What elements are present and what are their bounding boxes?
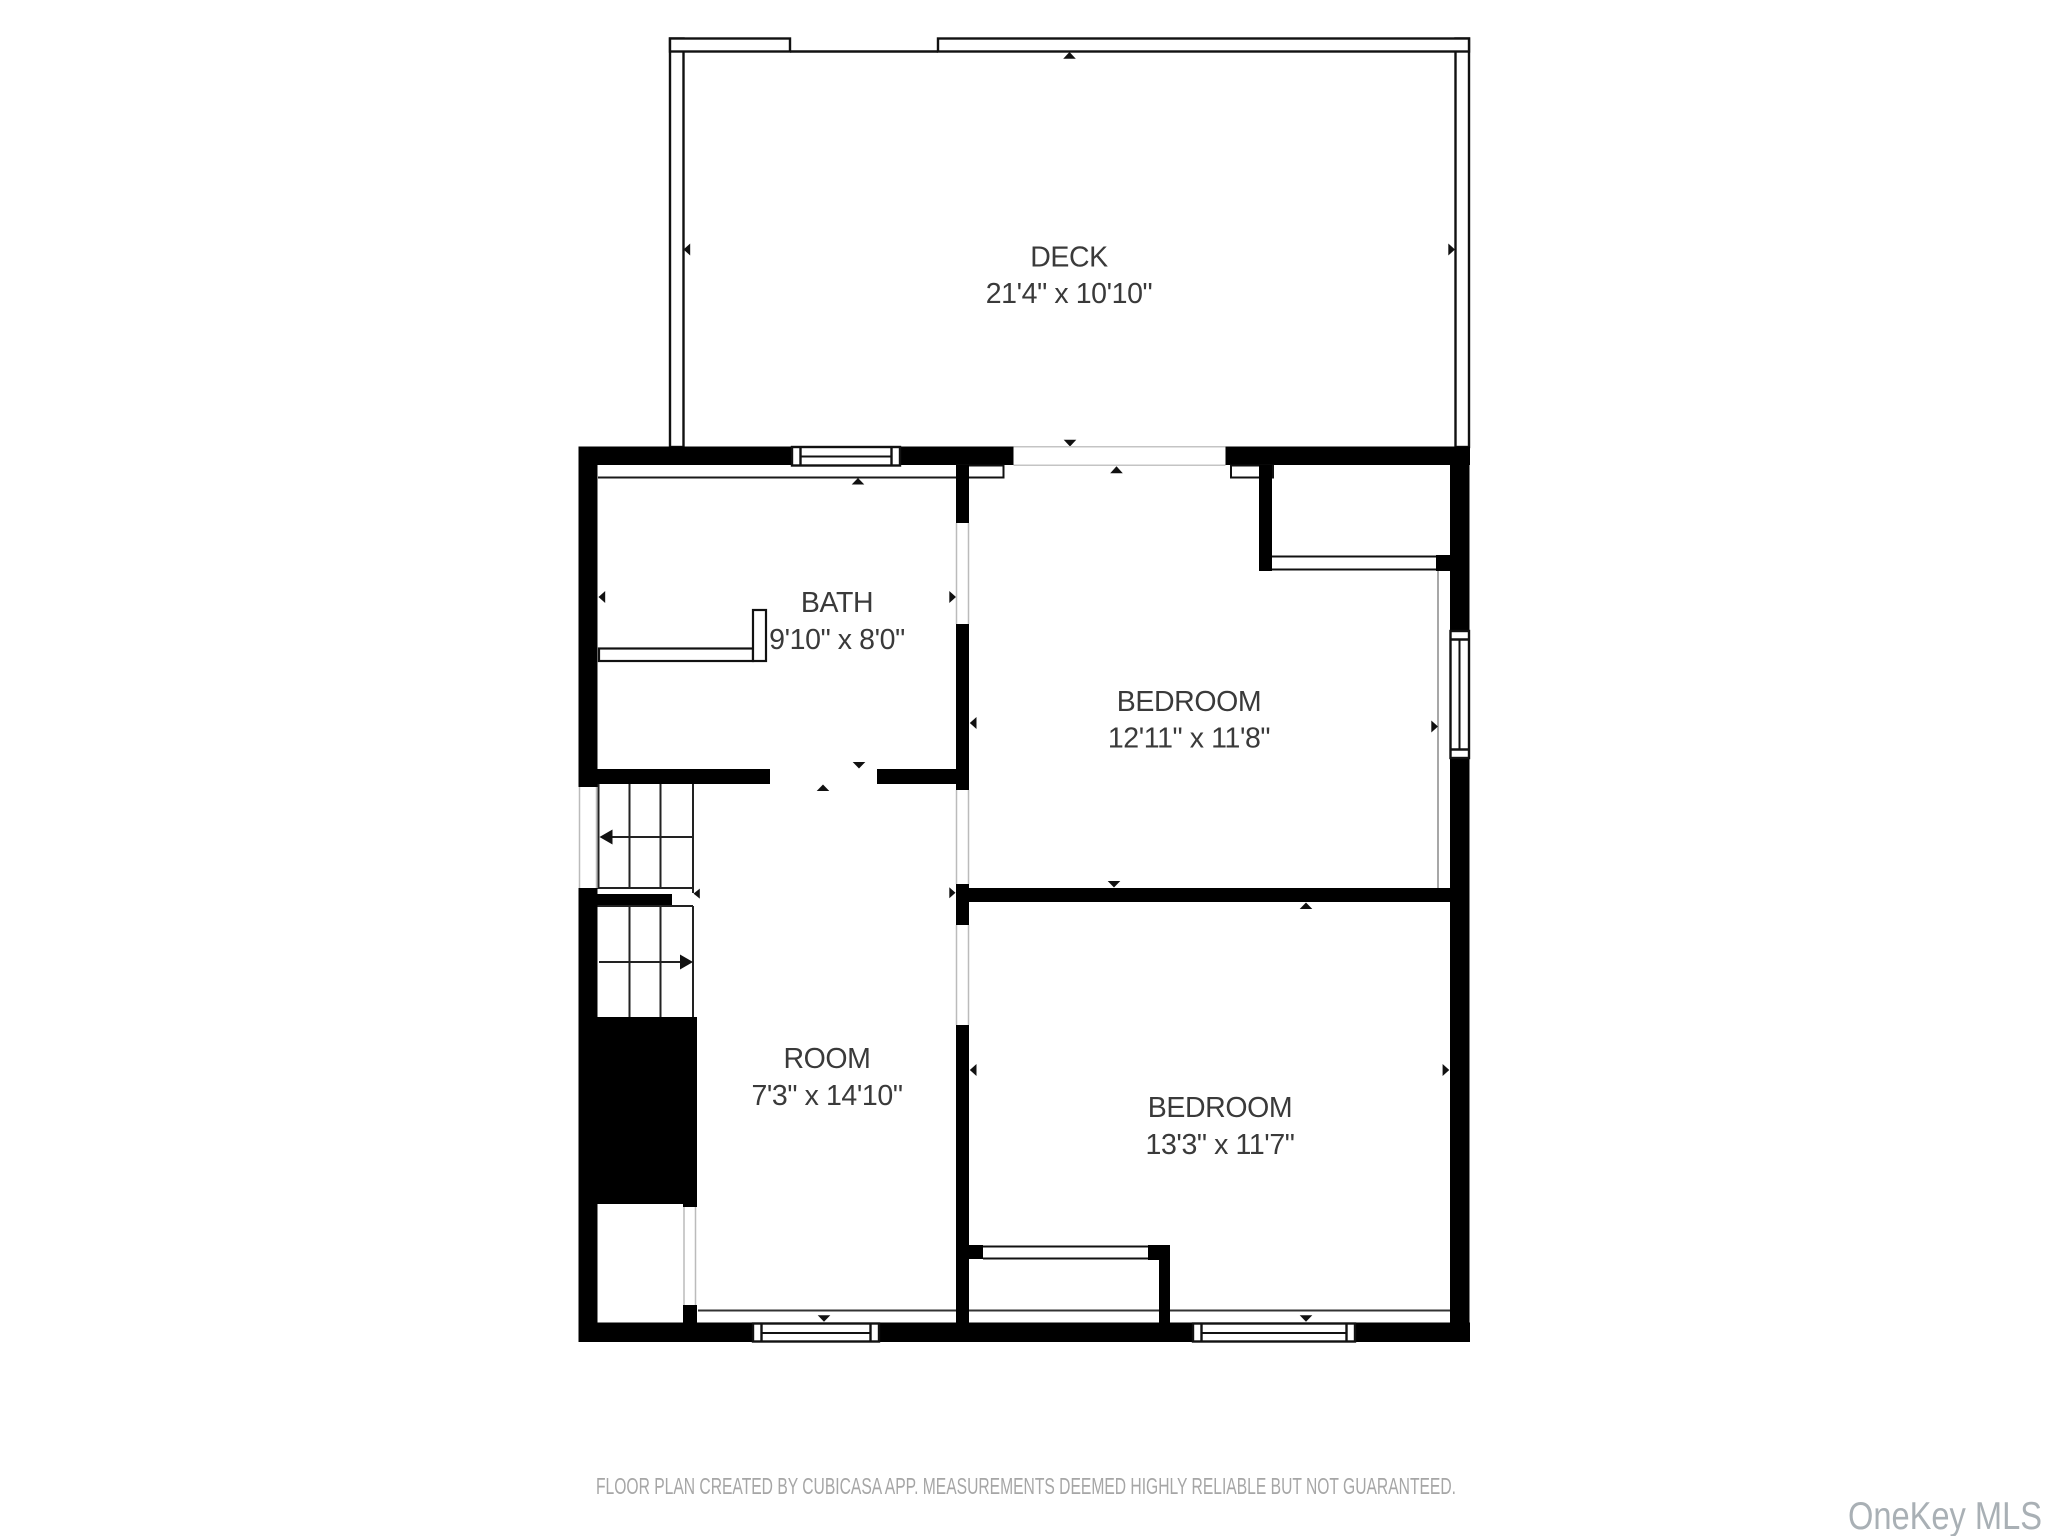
svg-text:21'4" x 10'10": 21'4" x 10'10" [986, 278, 1153, 310]
svg-text:ROOM: ROOM [783, 1043, 870, 1075]
svg-text:BEDROOM: BEDROOM [1117, 686, 1261, 718]
svg-text:BEDROOM: BEDROOM [1148, 1092, 1292, 1124]
svg-text:FLOOR PLAN CREATED BY CUBICASA: FLOOR PLAN CREATED BY CUBICASA APP. MEAS… [596, 1473, 1456, 1499]
svg-text:7'3" x 14'10": 7'3" x 14'10" [751, 1080, 902, 1112]
svg-text:BATH: BATH [801, 587, 873, 619]
svg-text:12'11" x 11'8": 12'11" x 11'8" [1108, 723, 1270, 755]
svg-text:DECK: DECK [1030, 242, 1108, 274]
svg-text:OneKey MLS: OneKey MLS [1848, 1495, 2042, 1536]
svg-text:9'10" x 8'0": 9'10" x 8'0" [769, 624, 905, 656]
svg-text:13'3" x 11'7": 13'3" x 11'7" [1146, 1129, 1295, 1161]
